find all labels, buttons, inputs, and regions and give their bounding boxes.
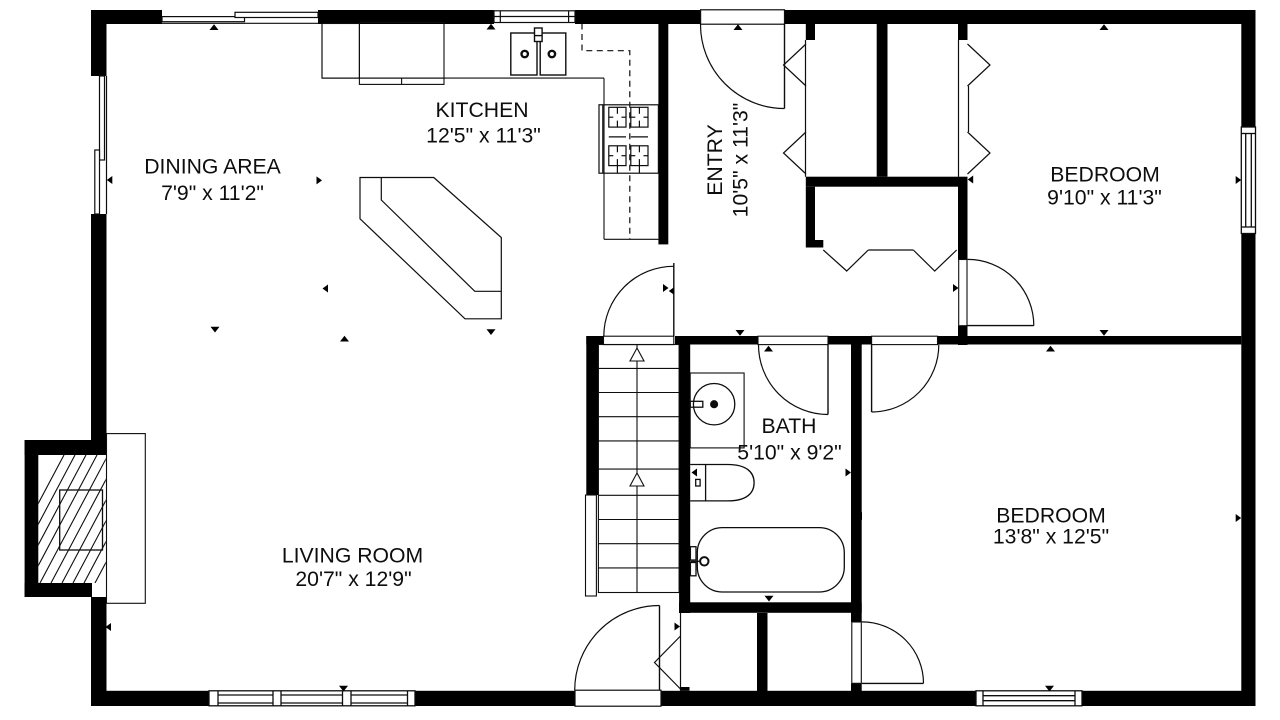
svg-text:DINING AREA: DINING AREA — [144, 156, 281, 179]
svg-text:BEDROOM: BEDROOM — [1050, 164, 1159, 187]
svg-text:KITCHEN: KITCHEN — [436, 99, 529, 122]
svg-text:12'5" x 11'3": 12'5" x 11'3" — [426, 125, 541, 148]
svg-text:BEDROOM: BEDROOM — [996, 505, 1105, 528]
svg-text:10'5" x 11'3": 10'5" x 11'3" — [730, 103, 753, 218]
svg-text:9'10" x 11'3": 9'10" x 11'3" — [1047, 187, 1162, 210]
svg-text:BATH: BATH — [762, 415, 817, 438]
svg-text:5'10" x 9'2": 5'10" x 9'2" — [737, 442, 841, 465]
svg-text:13'8" x 12'5": 13'8" x 12'5" — [993, 526, 1109, 549]
svg-text:7'9" x 11'2": 7'9" x 11'2" — [161, 182, 264, 205]
svg-text:20'7" x 12'9": 20'7" x 12'9" — [295, 568, 411, 591]
svg-text:ENTRY: ENTRY — [704, 124, 727, 195]
svg-text:LIVING ROOM: LIVING ROOM — [282, 545, 423, 568]
